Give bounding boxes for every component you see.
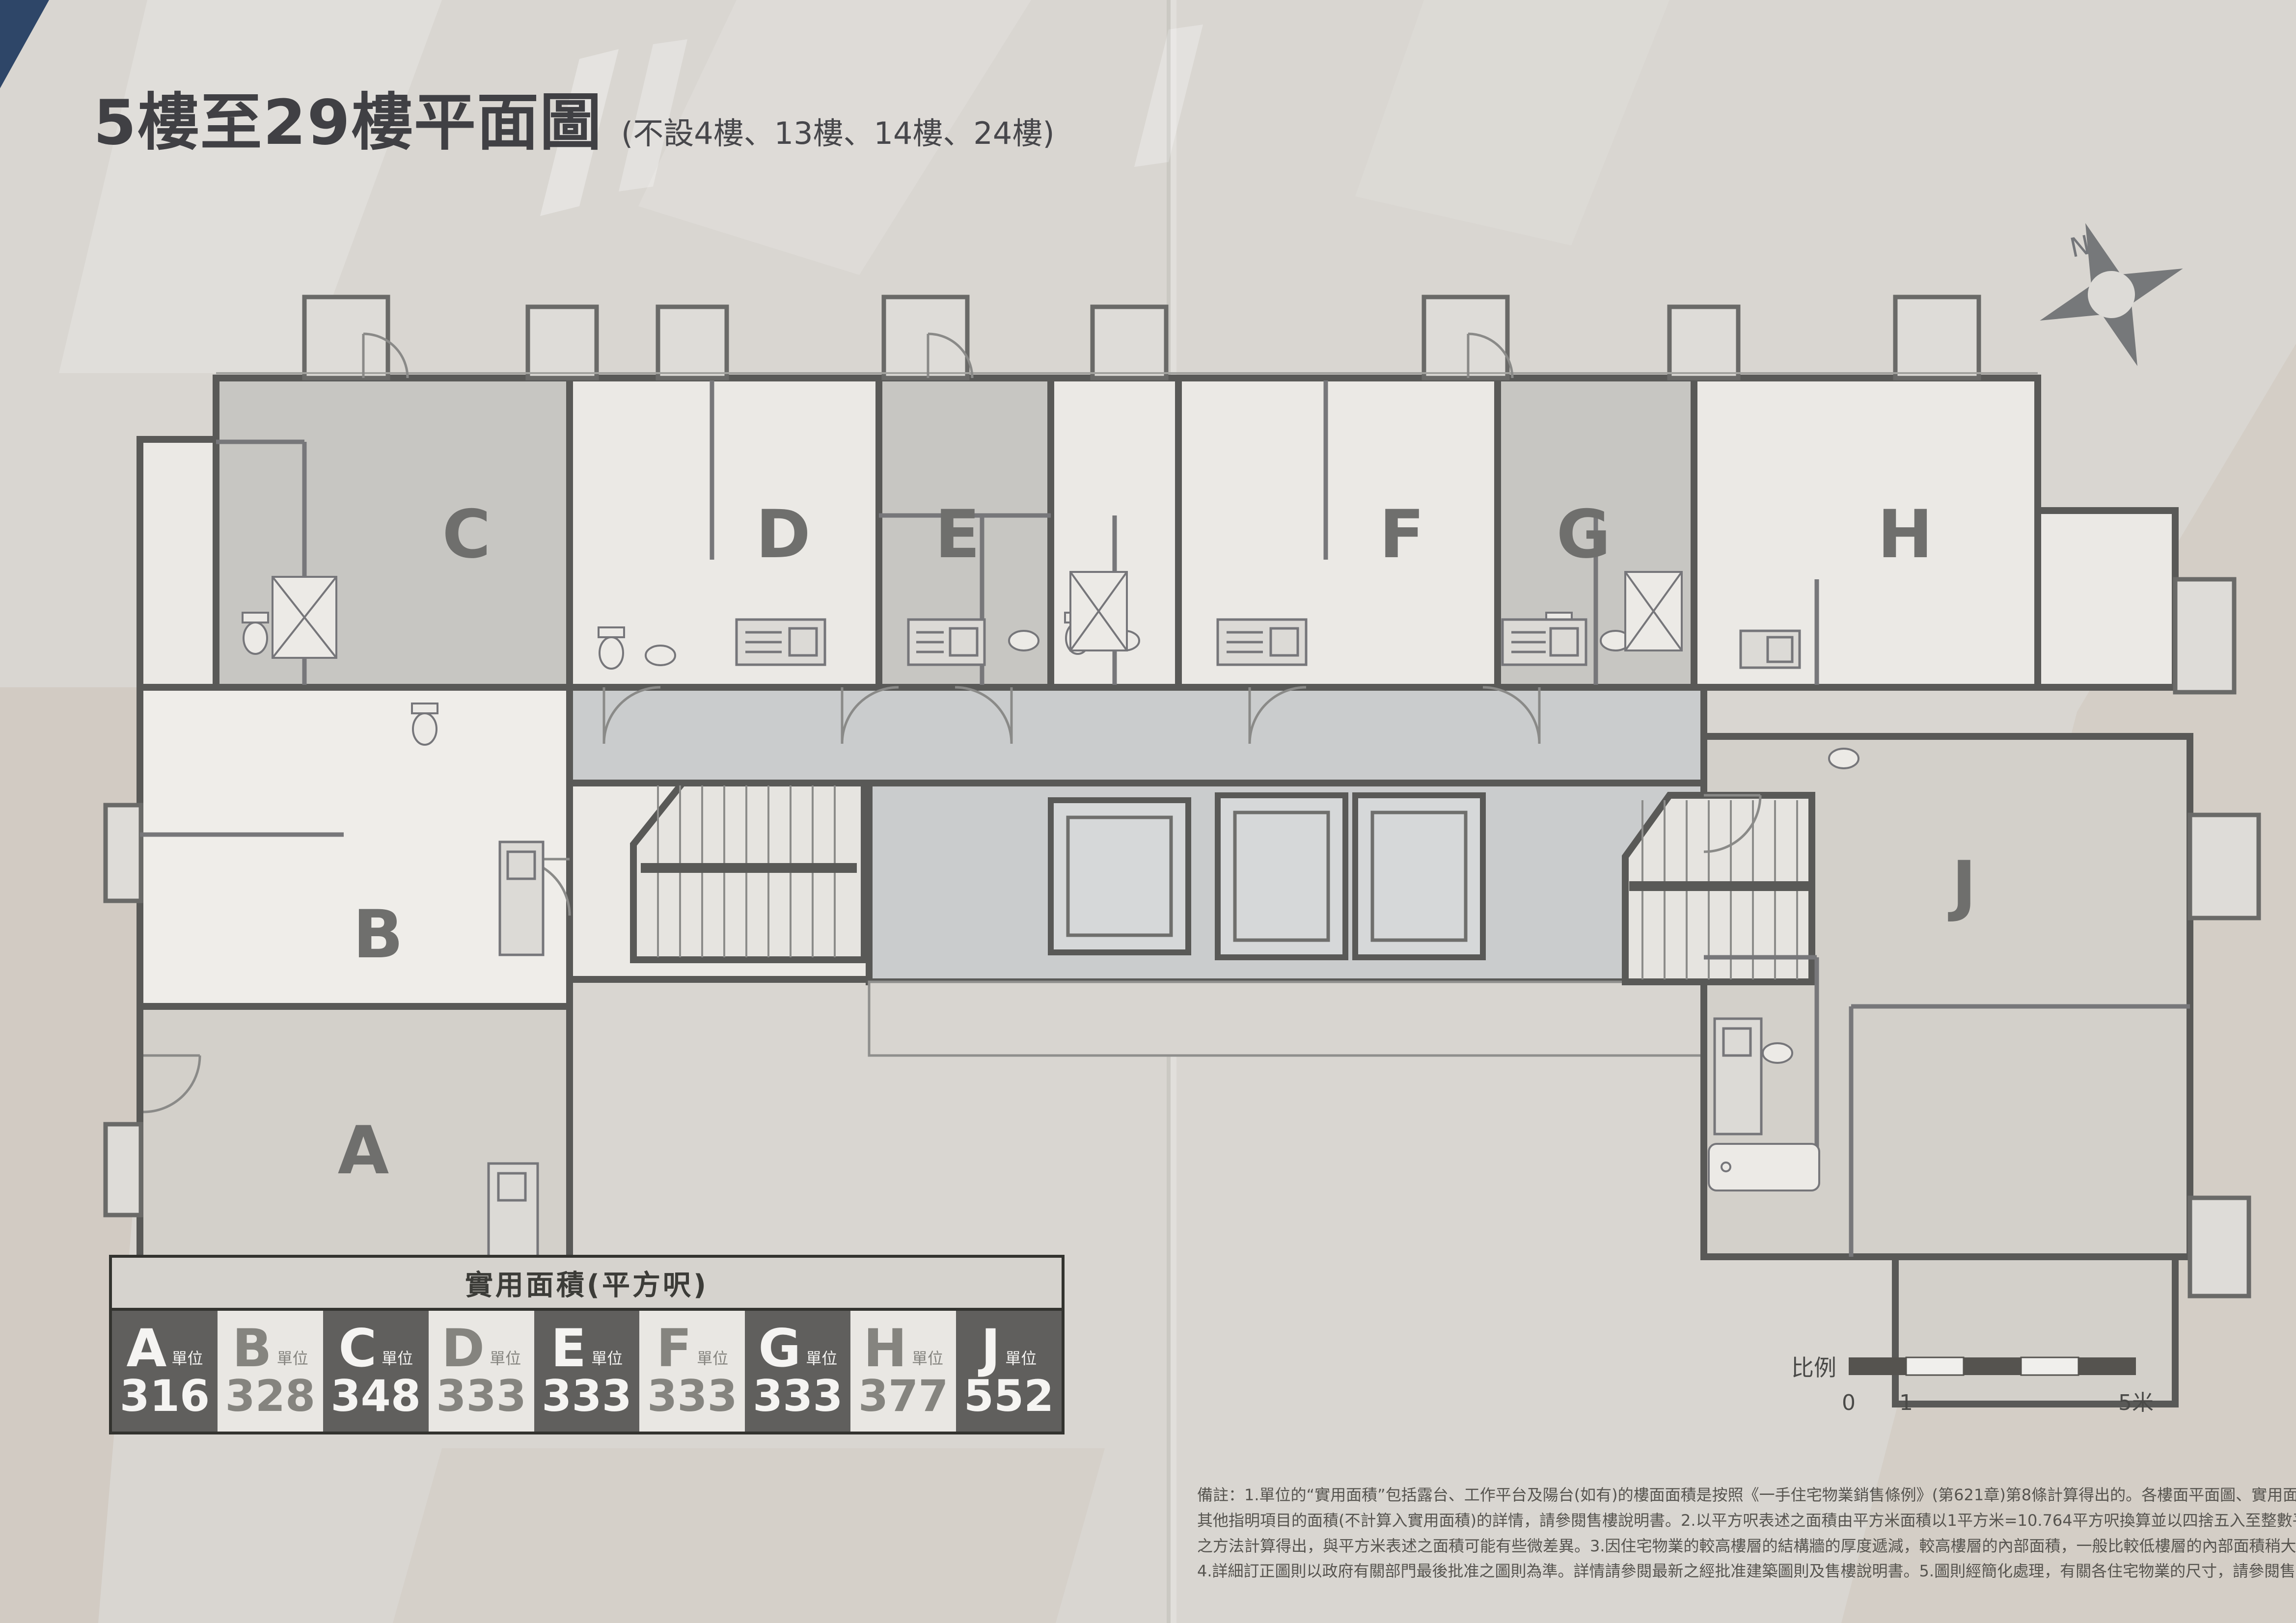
- legend-cell-h: H單位 377: [850, 1311, 956, 1432]
- legend-letter: C: [338, 1325, 377, 1373]
- unit-label-h: H: [1878, 496, 1933, 573]
- unit-label-d: D: [756, 496, 811, 573]
- legend-row: A單位 316 B單位 328 C單位 348 D單位 333 E單位 333 …: [112, 1311, 1062, 1432]
- legend-letter: G: [758, 1325, 801, 1373]
- legend-suffix: 單位: [806, 1346, 837, 1373]
- legend-header: 實用面積(平方呎): [112, 1258, 1062, 1311]
- legend-area: 333: [436, 1375, 526, 1418]
- floor-plan: C D E F G H B A J: [106, 297, 2259, 1404]
- legend-letter: F: [656, 1325, 692, 1373]
- scale-label: 比例: [1791, 1354, 1836, 1381]
- kitchen-counter-icon: [1741, 631, 1800, 668]
- scale-tick-0: 0: [1842, 1390, 1856, 1415]
- footnote-line-4: 4.詳細訂正圖則以政府有關部門最後批准之圖則為準。詳情請參閱最新之經批准建築圖則…: [1197, 1559, 2272, 1584]
- legend-suffix: 單位: [490, 1346, 521, 1373]
- legend-cell-e: E單位 333: [534, 1311, 640, 1432]
- legend-suffix: 單位: [591, 1346, 623, 1373]
- legend-cell-d: D單位 333: [429, 1311, 534, 1432]
- legend-cell-j: J單位 552: [956, 1311, 1062, 1432]
- legend-letter: A: [126, 1325, 166, 1373]
- legend-area: 552: [964, 1375, 1054, 1418]
- legend-suffix: 單位: [382, 1346, 413, 1373]
- unit-label-c: C: [442, 496, 491, 573]
- toilet-icon: [599, 627, 624, 669]
- scale-tick-1: 1: [1899, 1390, 1913, 1415]
- legend-area: 333: [542, 1375, 632, 1418]
- legend-cell-b: B單位 328: [218, 1311, 323, 1432]
- unit-label-g: G: [1557, 496, 1611, 573]
- legend-letter: E: [551, 1325, 586, 1373]
- kitchen-counter-icon: [489, 1163, 538, 1259]
- legend-letter: H: [863, 1325, 907, 1373]
- unit-label-f: F: [1379, 496, 1424, 573]
- legend-area: 333: [647, 1375, 738, 1418]
- legend-suffix: 單位: [171, 1346, 203, 1373]
- legend-letter: D: [441, 1325, 485, 1373]
- legend-suffix: 單位: [277, 1346, 308, 1373]
- kitchen-counter-icon: [500, 842, 543, 955]
- kitchen-counter-icon: [1503, 620, 1586, 665]
- shower-icon: [273, 577, 336, 658]
- kitchen-counter-icon: [737, 620, 825, 665]
- legend-suffix: 單位: [697, 1346, 728, 1373]
- sink-icon: [1829, 749, 1859, 768]
- scale-tick-5m: 5米: [2118, 1390, 2154, 1415]
- sink-icon: [1763, 1043, 1792, 1063]
- footnotes: 備註：1.單位的“實用面積”包括露台、工作平台及陽台(如有)的樓面面積是按照《一…: [1197, 1483, 2272, 1584]
- footnote-line-3: 之方法計算得出，與平方米表述之面積可能有些微差異。3.因住宅物業的較高樓層的結構…: [1197, 1534, 2272, 1559]
- page-subtitle: (不設4樓、13樓、14樓、24樓): [621, 108, 1055, 153]
- legend-suffix: 單位: [1005, 1346, 1037, 1373]
- book-edge: [0, 0, 49, 88]
- shower-icon: [1070, 572, 1127, 650]
- unit-label-b: B: [353, 896, 404, 973]
- unit-c-block: [216, 378, 570, 687]
- legend-area: 377: [858, 1375, 949, 1418]
- unit-label-e: E: [935, 496, 980, 573]
- unit-h-ext: [2038, 511, 2175, 687]
- footnote-line-1: 備註：1.單位的“實用面積”包括露台、工作平台及陽台(如有)的樓面面積是按照《一…: [1197, 1483, 2272, 1508]
- area-legend-table: 實用面積(平方呎) A單位 316 B單位 328 C單位 348 D單位 33…: [109, 1255, 1065, 1434]
- sink-icon: [646, 646, 675, 665]
- kitchen-counter-icon: [1715, 1019, 1761, 1134]
- legend-cell-a: A單位 316: [112, 1311, 218, 1432]
- sink-icon: [1009, 631, 1039, 650]
- void-area: [869, 982, 1704, 1055]
- legend-cell-f: F單位 333: [639, 1311, 745, 1432]
- kitchen-counter-icon: [908, 620, 984, 665]
- toilet-icon: [412, 703, 437, 745]
- unit-j-lower: [1895, 1257, 2175, 1404]
- legend-area: 316: [120, 1375, 210, 1418]
- legend-suffix: 單位: [912, 1346, 943, 1373]
- shower-icon: [1625, 572, 1682, 650]
- unit-c-annex: [140, 439, 219, 687]
- page-title-block: 5樓至29樓平面圖 (不設4樓、13樓、14樓、24樓): [93, 73, 1055, 162]
- lift-shafts: [1051, 795, 1483, 957]
- legend-cell-g: G單位 333: [745, 1311, 850, 1432]
- bathtub-icon: [1709, 1144, 1819, 1190]
- toilet-icon: [243, 613, 268, 654]
- corridor: [570, 685, 1704, 783]
- kitchen-counter-icon: [1218, 620, 1306, 665]
- legend-letter: J: [981, 1325, 1000, 1373]
- footnote-line-2: 其他指明項目的面積(不計算入實用面積)的詳情，請參閱售樓說明書。2.以平方呎表述…: [1197, 1508, 2272, 1534]
- legend-area: 348: [330, 1375, 421, 1418]
- legend-area: 333: [753, 1375, 843, 1418]
- page-title: 5樓至29樓平面圖: [93, 73, 602, 162]
- legend-cell-c: C單位 348: [323, 1311, 429, 1432]
- unit-label-a: A: [338, 1112, 389, 1189]
- legend-letter: B: [232, 1325, 272, 1373]
- unit-label-j: J: [1948, 847, 1976, 924]
- legend-area: 328: [225, 1375, 315, 1418]
- north-arrow: N: [2014, 197, 2209, 392]
